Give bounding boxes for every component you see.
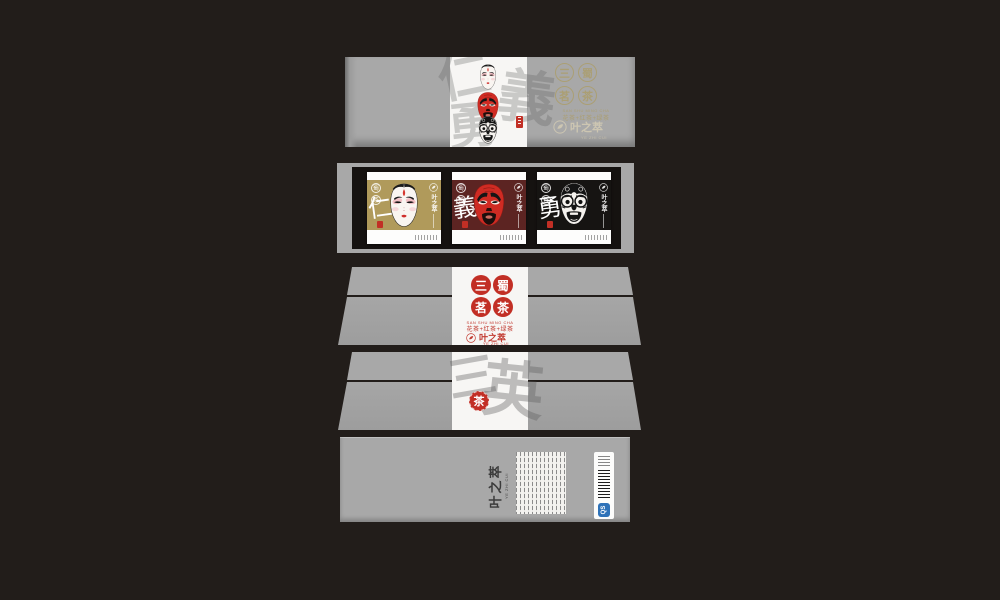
- panel-side-front: 三 蜀 茗 茶 SAN SHU MING CHA 花茶+红茶+绿茶 叶之萃 YE…: [337, 267, 641, 345]
- seal-stamp: 蜀: [371, 183, 381, 193]
- panel-box-bottom: 叶之萃 YE ZHI CUI QS: [340, 437, 630, 522]
- qs-certification-mark: QS: [598, 503, 610, 517]
- red-variety-tag: [516, 116, 523, 128]
- seal-stamp: 蜀: [541, 183, 551, 193]
- brand-name: 叶之萃: [600, 194, 606, 212]
- leaf-icon: [553, 120, 567, 134]
- back-label-strip: 三 英 茶: [452, 352, 528, 430]
- brand-tagline: YE ZHI CUI: [476, 341, 516, 345]
- tea-card-ren: 蜀 茶 仁 叶之萃: [367, 172, 441, 244]
- panel-side-back: 三 英 茶: [337, 352, 641, 430]
- red-seal: [377, 221, 383, 228]
- fine-print-bars: [415, 235, 437, 240]
- packaging-mockup-canvas: 仁 義 勇 三 蜀 茗 茶 SAN SHU MING CHA 花茶+红茶+绿茶 …: [0, 0, 1000, 600]
- seal-stamp: 蜀: [493, 275, 513, 295]
- barcode-icon: [598, 470, 610, 500]
- panel-lid-top: 仁 義 勇 三 蜀 茗 茶 SAN SHU MING CHA 花茶+红茶+绿茶 …: [345, 57, 635, 147]
- barcode-digits: [598, 456, 610, 466]
- seal-stamp: 蜀: [456, 183, 466, 193]
- seal-stamp: 蜀: [578, 63, 597, 82]
- brand-logo: 叶之萃: [597, 183, 609, 228]
- seal-stamp: 茶: [493, 297, 513, 317]
- barcode-label: QS: [594, 452, 614, 519]
- red-face-mask-icon: [468, 182, 510, 227]
- watermark-char: 義: [494, 65, 560, 131]
- vertical-text-rule: [433, 214, 434, 228]
- seal-stamp: 茗: [555, 86, 574, 105]
- seal-stamp: 茶: [578, 86, 597, 105]
- card-art-yi: 蜀 茶 義 叶之萃: [452, 180, 526, 230]
- white-face-mask-icon: [384, 181, 424, 228]
- seal-stamp: 三: [555, 63, 574, 82]
- vertical-text-rule: [603, 214, 604, 228]
- watermark-char: 英: [479, 357, 547, 425]
- white-face-mask-icon: [476, 63, 500, 90]
- brand-logo: 叶之萃: [553, 119, 603, 135]
- card-art-ren: 蜀 茶 仁 叶之萃: [367, 180, 441, 230]
- black-face-mask-icon: [474, 115, 502, 145]
- card-art-yong: 蜀 茶 勇 叶之萃: [537, 180, 611, 230]
- brand-tagline: YE ZHI CUI: [569, 135, 619, 140]
- lid-left-shadow: [345, 57, 357, 147]
- fine-print-bars: [585, 235, 607, 240]
- leaf-icon: [429, 183, 438, 192]
- seal-stamp: 茗: [471, 297, 491, 317]
- panel-card-tray: 蜀 茶 仁 叶之萃 蜀 茶 義: [337, 163, 634, 253]
- leaf-icon: [514, 183, 523, 192]
- brand-name: 叶之萃: [570, 119, 603, 135]
- brand-name: 叶之萃: [515, 194, 521, 212]
- fine-print-bars: [500, 235, 522, 240]
- brand-logo: 叶之萃: [427, 183, 439, 228]
- front-label-strip: 三 蜀 茗 茶 SAN SHU MING CHA 花茶+红茶+绿茶 叶之萃 YE…: [452, 267, 528, 345]
- brand-name: 叶之萃: [430, 194, 436, 212]
- brand-red-seal: 茶: [469, 391, 489, 411]
- black-face-mask-icon: [553, 181, 595, 227]
- vertical-text-rule: [518, 214, 519, 228]
- brand-tagline: YE ZHI CUI: [504, 451, 509, 521]
- brand-logo-rotated: 叶之萃 YE ZHI CUI: [485, 451, 509, 521]
- leaf-icon: [466, 333, 476, 343]
- leaf-icon: [599, 183, 608, 192]
- brand-name: 叶之萃: [485, 451, 504, 521]
- seal-stamp: 三: [471, 275, 491, 295]
- tea-card-yong: 蜀 茶 勇 叶之萃: [537, 172, 611, 244]
- brand-logo: 叶之萃: [512, 183, 524, 228]
- tea-card-yi: 蜀 茶 義 叶之萃: [452, 172, 526, 244]
- product-info-label: [510, 447, 572, 519]
